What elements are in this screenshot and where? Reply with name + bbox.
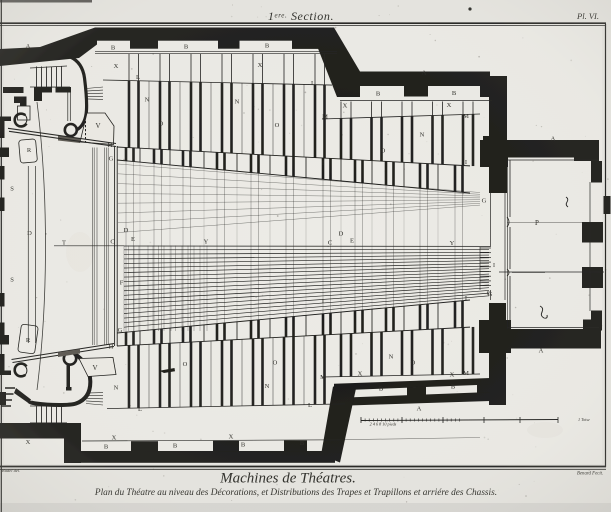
- svg-text:A: A: [539, 348, 544, 355]
- svg-text:B: B: [452, 90, 457, 97]
- svg-text:A: A: [422, 70, 427, 77]
- svg-text:X: X: [114, 63, 119, 70]
- svg-text:T: T: [62, 240, 66, 247]
- svg-text:L: L: [138, 406, 142, 413]
- svg-text:A: A: [551, 136, 556, 143]
- svg-text:S: S: [10, 186, 14, 193]
- svg-text:N: N: [420, 132, 425, 139]
- svg-text:N: N: [389, 354, 394, 361]
- svg-text:E: E: [131, 236, 135, 243]
- svg-text:N: N: [145, 97, 150, 104]
- svg-text:O: O: [381, 148, 386, 155]
- svg-text:B: B: [173, 443, 178, 450]
- svg-text:H: H: [108, 142, 113, 149]
- svg-text:I: I: [465, 295, 467, 302]
- svg-text:O: O: [183, 361, 188, 368]
- svg-text:V: V: [92, 364, 97, 372]
- svg-text:X: X: [258, 62, 263, 69]
- svg-text:O: O: [273, 360, 278, 367]
- svg-text:M: M: [463, 370, 469, 377]
- svg-text:X: X: [447, 102, 452, 109]
- svg-text:E: E: [350, 238, 354, 245]
- svg-text:I: I: [322, 298, 324, 305]
- svg-text:M: M: [320, 374, 326, 381]
- svg-text:D: D: [124, 227, 129, 234]
- svg-text:X: X: [450, 372, 455, 379]
- svg-text:G: G: [118, 327, 123, 334]
- svg-text:X: X: [229, 434, 234, 441]
- svg-text:A: A: [417, 406, 422, 413]
- svg-text:N: N: [265, 383, 270, 390]
- svg-text:X: X: [26, 439, 31, 446]
- svg-text:S: S: [10, 277, 14, 284]
- svg-text:A: A: [26, 43, 31, 50]
- svg-text:B: B: [376, 91, 381, 98]
- svg-text:B: B: [241, 442, 246, 449]
- svg-text:G: G: [482, 198, 487, 205]
- svg-text:V: V: [95, 122, 100, 130]
- svg-text:B: B: [379, 386, 384, 393]
- svg-text:M: M: [463, 113, 469, 120]
- svg-text:O: O: [275, 122, 280, 129]
- svg-text:X: X: [343, 103, 348, 110]
- svg-text:R: R: [27, 147, 32, 154]
- svg-text:C: C: [110, 239, 114, 246]
- svg-text:G: G: [487, 290, 492, 297]
- svg-text:O: O: [411, 360, 416, 367]
- svg-text:F: F: [120, 280, 124, 287]
- svg-text:Y: Y: [450, 240, 455, 247]
- svg-text:I: I: [465, 159, 467, 166]
- svg-text:Machines de Théatres.: Machines de Théatres.: [219, 471, 356, 487]
- svg-text:O: O: [159, 121, 164, 128]
- svg-text:B: B: [104, 444, 109, 451]
- svg-text:I: I: [322, 160, 324, 167]
- svg-text:G: G: [109, 156, 114, 163]
- svg-text:N: N: [235, 99, 240, 106]
- svg-text:Plan du Théatre au niveau des: Plan du Théatre au niveau des Décoration…: [94, 488, 497, 498]
- svg-text:D: D: [27, 230, 32, 237]
- svg-text:C: C: [328, 240, 332, 247]
- svg-text:B: B: [300, 440, 305, 447]
- svg-text:B: B: [451, 384, 456, 391]
- svg-text:N: N: [114, 385, 119, 392]
- svg-text:Y: Y: [204, 239, 209, 246]
- svg-text:H: H: [109, 344, 114, 351]
- svg-text:B: B: [184, 44, 189, 51]
- svg-text:D: D: [339, 231, 344, 238]
- svg-text:I: I: [493, 263, 495, 269]
- svg-text:Benard Fecit.: Benard Fecit.: [577, 472, 603, 477]
- svg-text:Radel del.: Radel del.: [1, 468, 20, 473]
- svg-text:P: P: [535, 219, 539, 227]
- svg-text:B: B: [111, 45, 116, 52]
- svg-text:L: L: [308, 402, 312, 409]
- svg-text:2 4 6 8 10 pieds: 2 4 6 8 10 pieds: [370, 422, 397, 427]
- svg-text:1 Toise: 1 Toise: [578, 417, 590, 422]
- svg-text:B: B: [265, 43, 270, 50]
- svg-text:X: X: [358, 371, 363, 378]
- svg-text:M: M: [322, 114, 328, 121]
- svg-text:L: L: [136, 74, 140, 81]
- svg-text:L: L: [311, 80, 315, 87]
- svg-text:X: X: [112, 435, 117, 442]
- svg-text:Pl. VI.: Pl. VI.: [576, 11, 599, 21]
